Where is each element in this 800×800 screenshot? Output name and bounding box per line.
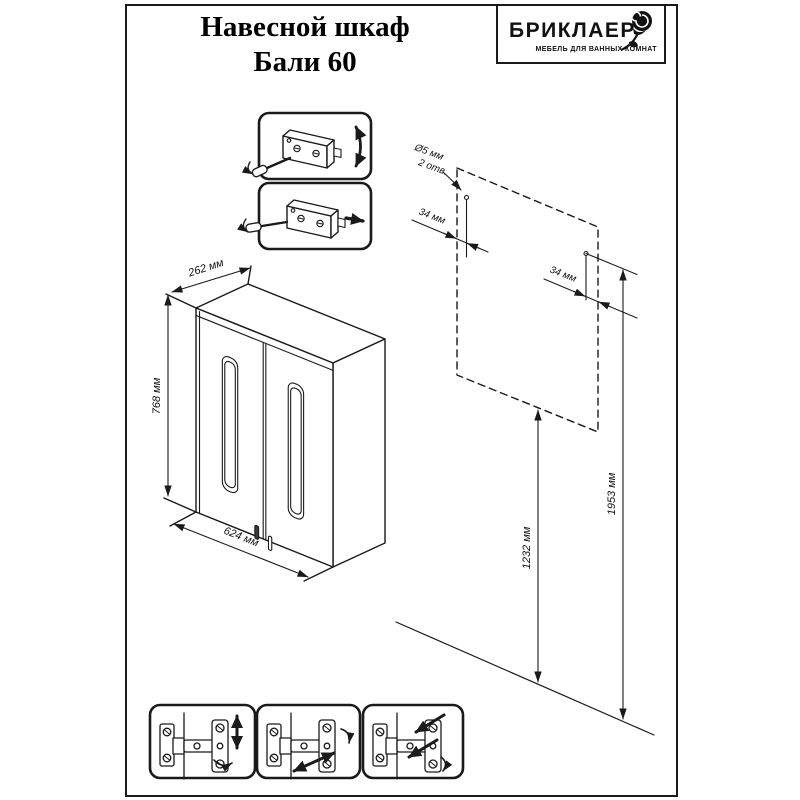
- screwdriver-shaft: [267, 158, 290, 168]
- hinge-adjustment-box-1: [150, 705, 255, 779]
- screwdriver-shaft: [262, 222, 287, 226]
- hinge-adjustment-box-3: [363, 705, 463, 779]
- to-wall-adjust-arrow-icon: [346, 218, 363, 221]
- screwdriver-handle: [251, 164, 268, 178]
- hanger-adjustment-box-2: [243, 183, 371, 249]
- drawing-sheet: Навесной шкаф Бали 60 БРИКЛАЕР МЕБЕЛЬ ДЛ…: [0, 0, 800, 800]
- hanger-adjustment-box-1: [248, 113, 371, 179]
- cabinet-drawing: 262 мм 768 мм 624 мм: [151, 257, 385, 581]
- bottom-height-dimension: 1232 мм: [521, 410, 538, 682]
- holes-height-dimension: 1953 мм: [606, 270, 623, 719]
- left-offset-dimension: 34 мм: [412, 207, 488, 252]
- cabinet-back-outline: [457, 168, 598, 432]
- hinge-adjustment-box-2: [257, 705, 360, 779]
- depth-dimension-label: 262 мм: [186, 257, 226, 280]
- wall-mounting-diagram: Ø5 мм 2 отв. 34 мм 34 мм: [396, 142, 654, 735]
- right-door-handle: [268, 536, 271, 551]
- hole-diameter-note: Ø5 мм 2 отв.: [412, 142, 461, 190]
- height-dimension-label: 768 мм: [151, 377, 163, 414]
- holes-height-label: 1953 мм: [606, 472, 618, 515]
- up-down-adjust-arrow-icon: [356, 127, 361, 166]
- height-dimension: 768 мм: [151, 295, 196, 512]
- rotate-arrow-icon: [341, 729, 349, 743]
- technical-drawing: 262 мм 768 мм 624 мм: [0, 0, 800, 800]
- cabinet-side-face: [333, 339, 385, 567]
- floor-line: [396, 622, 654, 735]
- rotate-arrow-icon: [441, 757, 446, 771]
- right-offset-label: 34 мм: [548, 265, 578, 285]
- bottom-height-label: 1232 мм: [521, 526, 533, 569]
- hole-count-label: 2 отв.: [416, 157, 449, 178]
- left-fixing-hole: [465, 196, 469, 200]
